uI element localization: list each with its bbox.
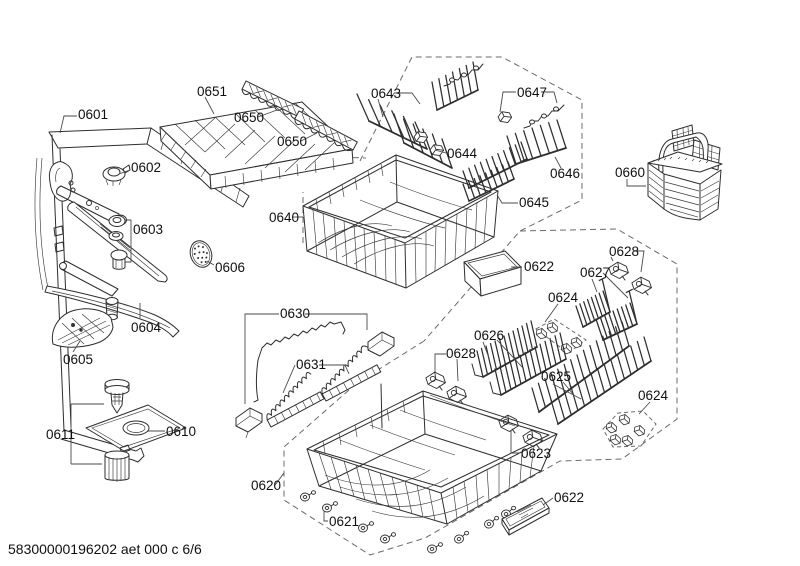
clip-box-0624b-drawing bbox=[603, 411, 656, 447]
tine-row-0646-drawing bbox=[507, 120, 566, 164]
clip-0647-drawing bbox=[497, 110, 513, 125]
part-label-0621: 0621 bbox=[329, 514, 359, 529]
part-label-0603: 0603 bbox=[133, 222, 163, 237]
part-label-0626: 0626 bbox=[474, 328, 504, 343]
filter-cylinder-0611-drawing bbox=[105, 451, 129, 482]
part-label-0644: 0644 bbox=[447, 146, 478, 161]
part-label-0651: 0651 bbox=[197, 84, 227, 99]
tray-0622b-drawing bbox=[502, 498, 549, 535]
bearing-0628a1-drawing bbox=[607, 261, 629, 281]
part-label-0624b: 0624 bbox=[638, 388, 669, 403]
part-label-0610: 0610 bbox=[166, 424, 196, 439]
part-label-0605: 0605 bbox=[63, 352, 93, 367]
part-label-0647: 0647 bbox=[517, 85, 547, 100]
part-label-0611: 0611 bbox=[46, 427, 75, 442]
part-label-0628a: 0628 bbox=[609, 244, 639, 259]
part-label-0645: 0645 bbox=[519, 195, 549, 210]
mesh-disc-0606-drawing bbox=[187, 238, 215, 270]
part-label-0604: 0604 bbox=[131, 320, 162, 335]
part-label-0622b: 0622 bbox=[554, 490, 584, 505]
folding-rack-0631a-drawing bbox=[256, 371, 324, 427]
part-label-0622a: 0622 bbox=[524, 259, 554, 274]
bearing-0628b1-drawing bbox=[424, 371, 446, 391]
part-label-0606: 0606 bbox=[215, 260, 245, 275]
part-label-0628b: 0628 bbox=[446, 346, 476, 361]
part-label-0602: 0602 bbox=[131, 160, 161, 175]
exploded-parts-diagram: 0601 0602 0603 0606 0604 0605 0611 0610 … bbox=[0, 0, 800, 566]
parts-diagram-page: 0601 0602 0603 0606 0604 0605 0611 0610 … bbox=[0, 0, 800, 566]
leader-lines bbox=[60, 92, 650, 521]
part-label-0631: 0631 bbox=[296, 357, 326, 372]
part-label-0650a: 0650 bbox=[234, 110, 264, 125]
bearing-cap-0602-drawing bbox=[103, 165, 130, 186]
part-label-0624a: 0624 bbox=[548, 290, 579, 305]
bearing-0628a2-drawing bbox=[630, 276, 652, 296]
lower-basket-0620-drawing bbox=[307, 384, 557, 524]
part-label-0630: 0630 bbox=[280, 306, 310, 321]
part-label-0643: 0643 bbox=[371, 86, 401, 101]
wire-handle-0630-drawing bbox=[236, 322, 394, 438]
part-label-0640: 0640 bbox=[269, 210, 299, 225]
part-label-0650b: 0650 bbox=[277, 134, 307, 149]
part-label-0660: 0660 bbox=[615, 165, 645, 180]
part-label-0623: 0623 bbox=[521, 446, 551, 461]
part-label-0620: 0620 bbox=[251, 478, 281, 493]
tine-row-0643c-drawing bbox=[432, 62, 478, 110]
part-label-0646: 0646 bbox=[550, 166, 580, 181]
document-code: 58300000196202 aet 000 c 6/6 bbox=[8, 541, 202, 557]
clip-box-0624a-drawing bbox=[535, 319, 586, 355]
filter-set-0611-drawing bbox=[105, 380, 129, 414]
tine-row-0627a-drawing bbox=[576, 277, 610, 327]
part-label-0601: 0601 bbox=[78, 107, 108, 122]
tray-0622a-drawing bbox=[464, 251, 521, 296]
cutlery-basket-0660-drawing bbox=[648, 125, 722, 220]
filter-plate-0605-drawing bbox=[52, 309, 113, 347]
part-label-0627: 0627 bbox=[580, 265, 610, 280]
part-label-0625: 0625 bbox=[541, 369, 571, 384]
